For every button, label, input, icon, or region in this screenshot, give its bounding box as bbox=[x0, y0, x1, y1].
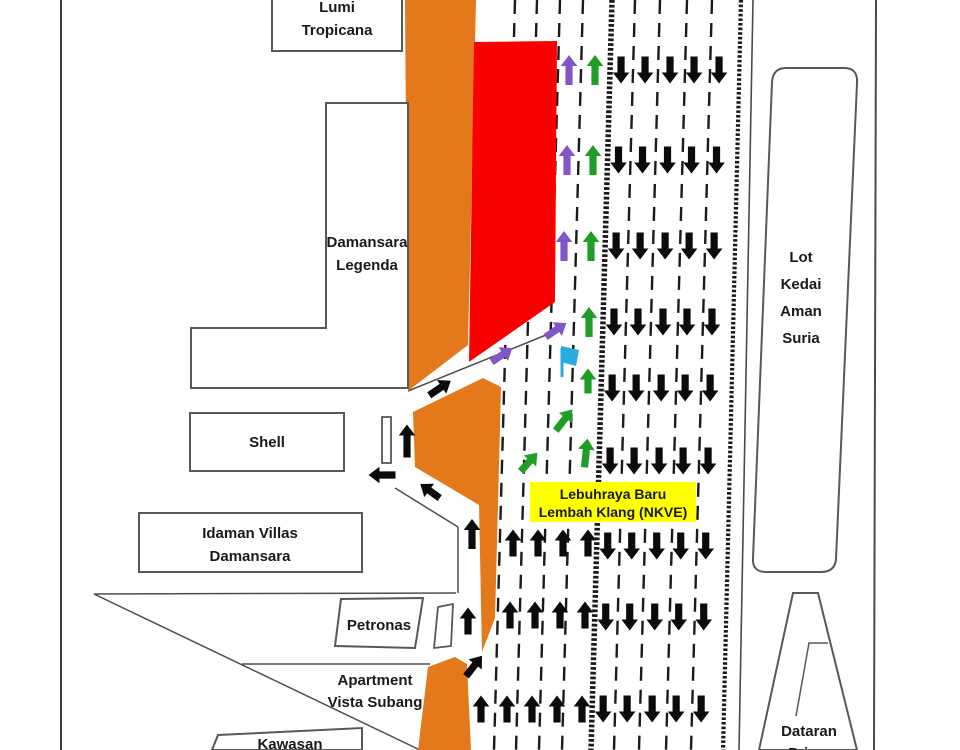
road-edge-line bbox=[94, 593, 456, 594]
black-traffic-arrow-up bbox=[499, 696, 516, 723]
building-label: Petronas bbox=[347, 617, 411, 634]
building-dataran-prima: Dataran Prima bbox=[759, 593, 857, 750]
black-traffic-arrow-down bbox=[700, 448, 717, 475]
purple-traffic-arrow-up bbox=[561, 55, 578, 85]
building-label: Aman bbox=[780, 303, 822, 320]
building-label: Damansara bbox=[210, 548, 292, 565]
black-traffic-arrow-up bbox=[369, 467, 396, 484]
building-damansara-legenda: Damansara Legenda bbox=[191, 103, 408, 388]
black-traffic-arrow-down bbox=[628, 375, 645, 402]
black-traffic-arrow-down bbox=[599, 533, 616, 560]
highway-label-text: Lembah Klang (NKVE) bbox=[539, 504, 688, 520]
building-label: Shell bbox=[249, 434, 285, 451]
green-traffic-arrow-up bbox=[583, 231, 600, 261]
black-traffic-arrow-down bbox=[677, 375, 694, 402]
black-traffic-arrow-up bbox=[464, 519, 481, 549]
highway-right-edge-line bbox=[723, 0, 741, 750]
green-traffic-arrow-up bbox=[581, 307, 598, 337]
black-traffic-arrow-down bbox=[704, 309, 721, 336]
black-traffic-arrow-up bbox=[577, 602, 594, 629]
checkpoint-flag-icon bbox=[561, 346, 579, 377]
black-traffic-arrow-down bbox=[686, 57, 703, 84]
building-petronas: Petronas bbox=[335, 598, 423, 648]
black-traffic-arrow-down bbox=[659, 147, 676, 174]
black-traffic-arrow-down bbox=[702, 375, 719, 402]
black-traffic-arrow-down bbox=[648, 533, 665, 560]
lane-divider-line bbox=[639, 0, 660, 750]
black-traffic-arrow-down bbox=[675, 448, 692, 475]
building-label: Prima bbox=[788, 745, 830, 750]
black-traffic-arrow-down bbox=[662, 57, 679, 84]
black-traffic-arrow-down bbox=[602, 448, 619, 475]
closed-road-orange-south bbox=[418, 657, 471, 750]
building-label: Idaman Villas bbox=[202, 525, 298, 542]
building-label: Kawasan bbox=[257, 736, 322, 750]
green-traffic-arrow-up bbox=[514, 447, 543, 477]
building-outline bbox=[753, 68, 857, 572]
building-label: Legenda bbox=[336, 257, 398, 274]
black-traffic-arrow-up bbox=[524, 696, 541, 723]
black-traffic-arrow-down bbox=[653, 375, 670, 402]
lane-divider-line bbox=[562, 0, 583, 750]
building-label: Damansara bbox=[327, 234, 409, 251]
layby-shell bbox=[382, 417, 391, 463]
highway-label-text: Lebuhraya Baru bbox=[560, 486, 667, 502]
service-road-edge-line bbox=[739, 0, 753, 750]
black-traffic-arrow-down bbox=[706, 233, 723, 260]
green-traffic-arrow-up bbox=[549, 404, 579, 435]
black-traffic-arrow-up bbox=[527, 602, 544, 629]
black-traffic-arrow-down bbox=[655, 309, 672, 336]
building-label: Tropicana bbox=[302, 22, 374, 39]
black-traffic-arrow-down bbox=[657, 233, 674, 260]
purple-traffic-arrow-up bbox=[559, 145, 576, 175]
black-traffic-arrow-down bbox=[708, 147, 725, 174]
building-label: Vista Subang bbox=[328, 694, 423, 711]
area-apartment-vista-subang: Apartment Vista Subang bbox=[328, 672, 423, 711]
green-traffic-arrow-up bbox=[580, 369, 597, 394]
green-traffic-arrow-up bbox=[585, 145, 602, 175]
green-traffic-arrow-up bbox=[576, 438, 596, 469]
black-traffic-arrow-up bbox=[460, 608, 477, 635]
lane-divider-line bbox=[614, 0, 635, 750]
traffic-diversion-map: Lumi Tropicana Damansara Legenda Shell I… bbox=[0, 0, 960, 750]
black-traffic-arrow-down bbox=[604, 375, 621, 402]
black-traffic-arrow-down bbox=[595, 696, 612, 723]
black-traffic-arrow-down bbox=[670, 604, 687, 631]
black-traffic-arrow-down bbox=[679, 309, 696, 336]
black-traffic-arrow-down bbox=[606, 309, 623, 336]
black-traffic-arrow-down bbox=[613, 57, 630, 84]
closed-area-red bbox=[469, 41, 557, 362]
black-traffic-arrow-down bbox=[681, 233, 698, 260]
building-label: Kedai bbox=[781, 276, 822, 293]
closed-road-orange-middle bbox=[413, 378, 501, 652]
black-traffic-arrow-down bbox=[651, 448, 668, 475]
building-idaman-villas: Idaman Villas Damansara bbox=[139, 513, 362, 572]
black-traffic-arrow-down bbox=[634, 147, 651, 174]
black-traffic-arrow-down bbox=[711, 57, 728, 84]
black-traffic-arrow-down bbox=[693, 696, 710, 723]
black-traffic-arrow-up bbox=[473, 696, 490, 723]
purple-traffic-arrow-up bbox=[556, 231, 573, 261]
black-traffic-arrow-up bbox=[574, 696, 591, 723]
green-traffic-arrow-up bbox=[587, 55, 604, 85]
black-traffic-arrow-down bbox=[608, 233, 625, 260]
purple-traffic-arrow-up bbox=[541, 316, 571, 344]
building-label: Lot bbox=[789, 249, 812, 266]
black-traffic-arrow-down bbox=[695, 604, 712, 631]
right-boundary-line bbox=[874, 0, 876, 750]
building-lumi-tropicana: Lumi Tropicana bbox=[272, 0, 402, 51]
highway-name-label: Lebuhraya Baru Lembah Klang (NKVE) bbox=[530, 482, 696, 522]
black-traffic-arrow-up bbox=[502, 602, 519, 629]
black-traffic-arrow-down bbox=[623, 533, 640, 560]
building-label: Dataran bbox=[781, 723, 837, 740]
building-label: Lumi bbox=[319, 0, 355, 16]
black-traffic-arrow-down bbox=[683, 147, 700, 174]
black-traffic-arrow-down bbox=[626, 448, 643, 475]
black-traffic-arrow-down bbox=[597, 604, 614, 631]
black-traffic-arrow-down bbox=[632, 233, 649, 260]
black-traffic-arrow-down bbox=[630, 309, 647, 336]
black-traffic-arrow-down bbox=[637, 57, 654, 84]
layby-petronas bbox=[434, 604, 453, 648]
building-kawasan: Kawasan bbox=[212, 728, 362, 750]
building-label: Suria bbox=[782, 330, 820, 347]
black-traffic-arrow-down bbox=[646, 604, 663, 631]
black-traffic-arrow-down bbox=[672, 533, 689, 560]
building-lot-kedai-aman-suria: Lot Kedai Aman Suria bbox=[753, 68, 857, 572]
map-drawing: Lumi Tropicana Damansara Legenda Shell I… bbox=[0, 0, 960, 750]
flag-banner bbox=[561, 346, 579, 366]
black-traffic-arrow-down bbox=[619, 696, 636, 723]
building-shell: Shell bbox=[190, 413, 344, 471]
black-traffic-arrow-down bbox=[621, 604, 638, 631]
building-label: Apartment bbox=[337, 672, 412, 689]
closed-road-orange-north bbox=[405, 0, 476, 391]
black-traffic-arrow-down bbox=[668, 696, 685, 723]
black-traffic-arrow-down bbox=[610, 147, 627, 174]
black-traffic-arrow-down bbox=[697, 533, 714, 560]
black-traffic-arrow-up bbox=[505, 530, 522, 557]
closed-road-overlay bbox=[405, 0, 557, 750]
black-traffic-arrow-up bbox=[399, 425, 416, 458]
black-traffic-arrow-down bbox=[644, 696, 661, 723]
